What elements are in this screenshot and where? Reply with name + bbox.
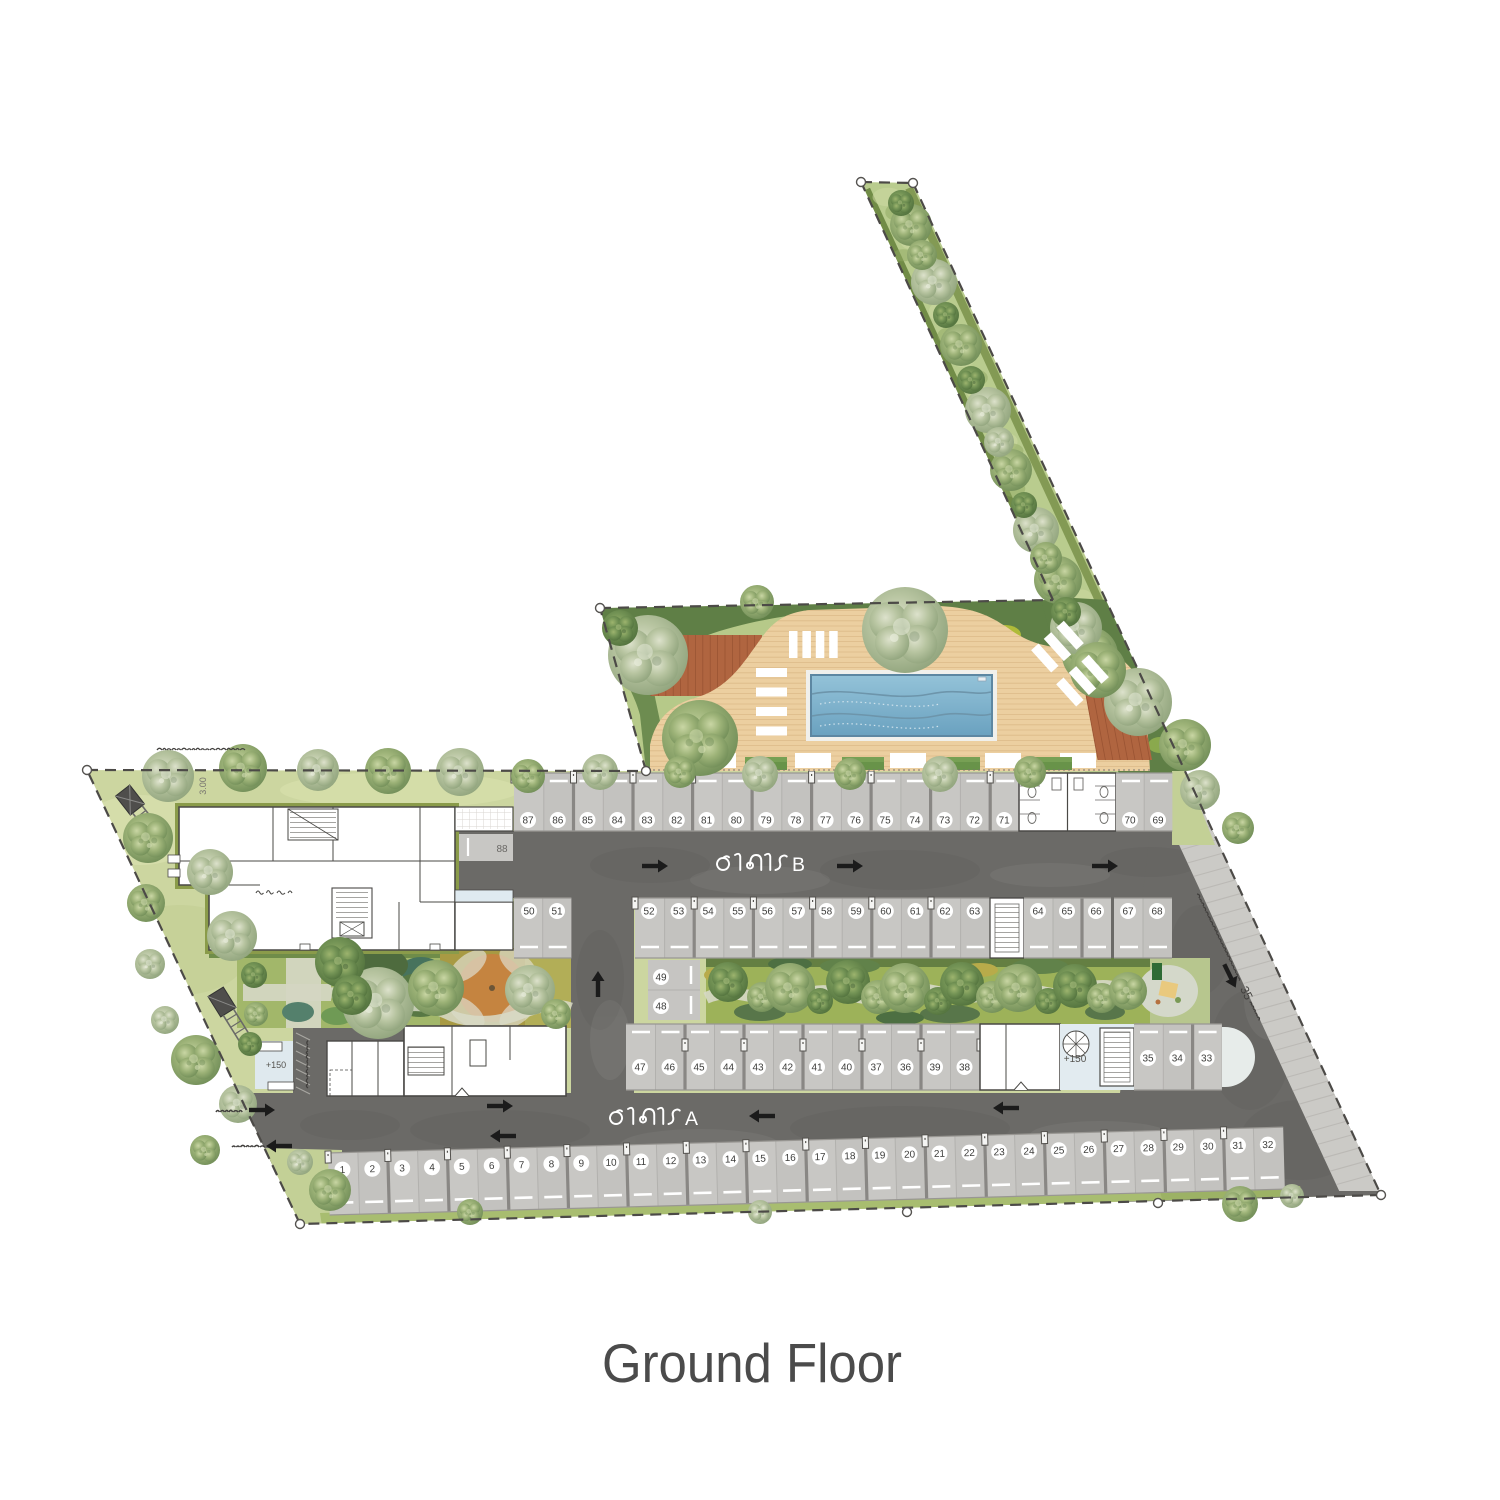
svg-text:28: 28	[1143, 1143, 1155, 1154]
svg-text:24: 24	[1023, 1146, 1035, 1157]
svg-text:74: 74	[909, 815, 921, 826]
svg-text:23: 23	[993, 1147, 1005, 1158]
svg-text:68: 68	[1151, 906, 1163, 917]
svg-text:36: 36	[900, 1062, 912, 1073]
svg-text:42: 42	[782, 1062, 794, 1073]
svg-text:B: B	[792, 854, 805, 876]
svg-text:31: 31	[1232, 1141, 1244, 1152]
svg-text:64: 64	[1032, 906, 1044, 917]
svg-text:77: 77	[820, 815, 832, 826]
svg-text:15: 15	[755, 1154, 767, 1165]
svg-text:10: 10	[605, 1158, 617, 1169]
svg-text:+150: +150	[266, 1060, 286, 1070]
svg-text:66: 66	[1090, 906, 1102, 917]
svg-text:50: 50	[523, 906, 535, 917]
svg-text:79: 79	[761, 815, 773, 826]
svg-text:12: 12	[665, 1156, 677, 1167]
svg-text:75: 75	[880, 815, 892, 826]
svg-text:71: 71	[999, 815, 1011, 826]
svg-text:73: 73	[939, 815, 951, 826]
svg-text:46: 46	[664, 1062, 676, 1073]
svg-text:48: 48	[655, 1001, 667, 1012]
svg-text:55: 55	[732, 906, 744, 917]
svg-text:19: 19	[874, 1150, 886, 1161]
svg-text:51: 51	[551, 906, 563, 917]
svg-text:52: 52	[643, 906, 655, 917]
svg-text:11: 11	[636, 1157, 647, 1168]
svg-text:41: 41	[811, 1062, 823, 1073]
svg-text:7: 7	[519, 1160, 525, 1171]
svg-text:49: 49	[655, 972, 667, 983]
svg-text:8: 8	[548, 1159, 554, 1170]
svg-text:39: 39	[929, 1062, 941, 1073]
svg-text:A: A	[685, 1108, 698, 1130]
svg-text:47: 47	[634, 1062, 646, 1073]
svg-text:37: 37	[870, 1062, 882, 1073]
svg-text:45: 45	[693, 1062, 705, 1073]
svg-text:35: 35	[1142, 1053, 1154, 1064]
svg-text:54: 54	[703, 906, 715, 917]
svg-text:65: 65	[1061, 906, 1073, 917]
svg-text:53: 53	[673, 906, 685, 917]
svg-text:78: 78	[790, 815, 802, 826]
svg-text:80: 80	[731, 815, 743, 826]
svg-text:40: 40	[841, 1062, 853, 1073]
svg-text:86: 86	[552, 815, 564, 826]
svg-text:Ground Floor: Ground Floor	[602, 1332, 902, 1394]
svg-text:88: 88	[496, 844, 508, 855]
svg-text:33: 33	[1201, 1053, 1213, 1064]
svg-text:5: 5	[459, 1162, 465, 1173]
svg-text:27: 27	[1113, 1144, 1125, 1155]
svg-text:4: 4	[429, 1163, 435, 1174]
svg-text:57: 57	[791, 906, 803, 917]
svg-text:56: 56	[762, 906, 774, 917]
svg-text:34: 34	[1172, 1053, 1184, 1064]
svg-text:81: 81	[701, 815, 713, 826]
svg-text:60: 60	[880, 906, 892, 917]
svg-text:87: 87	[522, 815, 534, 826]
svg-text:3: 3	[399, 1163, 405, 1174]
svg-text:67: 67	[1122, 906, 1134, 917]
svg-text:29: 29	[1173, 1142, 1185, 1153]
svg-text:14: 14	[725, 1154, 737, 1165]
svg-text:16: 16	[785, 1153, 797, 1164]
svg-text:26: 26	[1083, 1145, 1095, 1156]
svg-text:9: 9	[578, 1158, 584, 1169]
svg-text:72: 72	[969, 815, 981, 826]
svg-text:32: 32	[1262, 1140, 1274, 1151]
svg-text:38: 38	[959, 1062, 971, 1073]
svg-text:18: 18	[844, 1151, 856, 1162]
svg-text:17: 17	[814, 1152, 826, 1163]
svg-text:70: 70	[1124, 815, 1136, 826]
svg-text:59: 59	[851, 906, 863, 917]
svg-text:30: 30	[1202, 1141, 1214, 1152]
svg-text:61: 61	[910, 906, 922, 917]
svg-text:2: 2	[369, 1164, 375, 1175]
svg-text:25: 25	[1053, 1145, 1065, 1156]
svg-text:22: 22	[964, 1148, 976, 1159]
svg-text:44: 44	[723, 1062, 735, 1073]
svg-text:21: 21	[934, 1149, 946, 1160]
svg-text:13: 13	[695, 1155, 707, 1166]
svg-text:3.00: 3.00	[198, 777, 208, 795]
svg-text:58: 58	[821, 906, 833, 917]
svg-text:6: 6	[489, 1161, 495, 1172]
svg-text:62: 62	[939, 906, 951, 917]
svg-text:69: 69	[1152, 815, 1164, 826]
svg-text:+150: +150	[1064, 1054, 1087, 1065]
svg-text:85: 85	[582, 815, 594, 826]
svg-text:63: 63	[969, 906, 981, 917]
svg-text:82: 82	[671, 815, 683, 826]
svg-text:43: 43	[752, 1062, 764, 1073]
svg-text:83: 83	[641, 815, 653, 826]
svg-text:76: 76	[850, 815, 862, 826]
svg-text:20: 20	[904, 1150, 916, 1161]
svg-text:84: 84	[612, 815, 624, 826]
